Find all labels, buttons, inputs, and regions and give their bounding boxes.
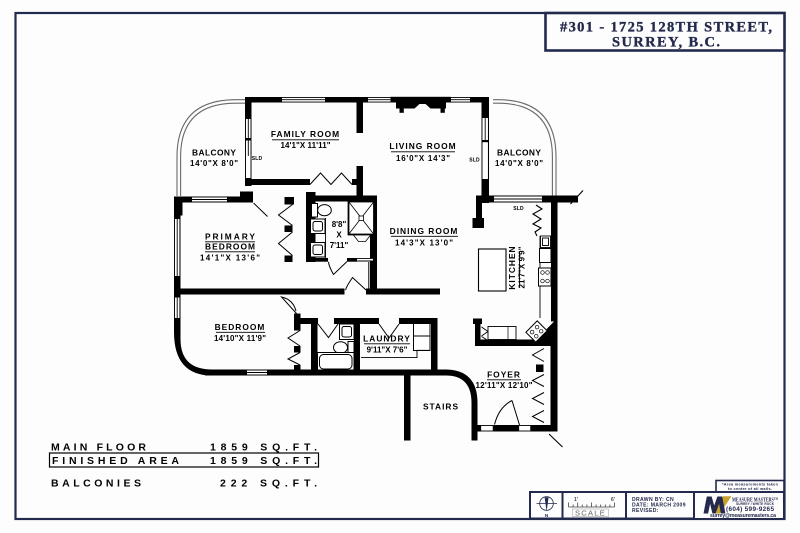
- svg-text:BEDROOM: BEDROOM: [205, 242, 255, 252]
- svg-text:14'1"X 11'11": 14'1"X 11'11": [281, 141, 331, 150]
- svg-text:FAMILY ROOM: FAMILY ROOM: [271, 129, 340, 139]
- svg-text:14'10"X 11'9": 14'10"X 11'9": [214, 334, 266, 343]
- svg-text:DINING ROOM: DINING ROOM: [390, 226, 459, 236]
- svg-text:MAIN FLOOR: MAIN FLOOR: [51, 442, 146, 454]
- svg-text:BALCONY: BALCONY: [192, 148, 236, 158]
- svg-text:6': 6': [611, 497, 615, 503]
- svg-text:KITCHEN: KITCHEN: [507, 245, 517, 289]
- svg-text:12'11"X 12'10": 12'11"X 12'10": [476, 381, 533, 390]
- svg-text:7'11": 7'11": [330, 241, 349, 250]
- svg-text:14'0"X 8'0": 14'0"X 8'0": [190, 159, 238, 168]
- svg-text:16'0"X 14'3": 16'0"X 14'3": [396, 154, 450, 163]
- svg-text:REVISED:: REVISED:: [632, 508, 659, 514]
- svg-text:BALCONIES: BALCONIES: [51, 478, 141, 490]
- svg-text:9'11"X 7'6": 9'11"X 7'6": [367, 346, 408, 355]
- svg-text:14'1"X 13'6": 14'1"X 13'6": [200, 254, 260, 263]
- svg-text:1': 1': [574, 497, 578, 503]
- svg-text:14'0"X 8'0": 14'0"X 8'0": [495, 159, 543, 168]
- svg-text:surrey@measuremasters.ca: surrey@measuremasters.ca: [710, 513, 776, 519]
- svg-text:FOYER: FOYER: [487, 370, 521, 380]
- svg-text:BALCONY: BALCONY: [497, 148, 541, 158]
- svg-text:STAIRS: STAIRS: [423, 402, 459, 412]
- svg-text:21'7"X 9'9": 21'7"X 9'9": [518, 246, 527, 288]
- svg-text:SURREY, B.C.: SURREY, B.C.: [612, 35, 720, 51]
- svg-text:SLD: SLD: [469, 158, 480, 164]
- svg-text:SLD: SLD: [252, 156, 263, 162]
- svg-text:BEDROOM: BEDROOM: [215, 322, 266, 332]
- svg-text:SCALE: SCALE: [575, 509, 606, 518]
- svg-text:8'8": 8'8": [332, 220, 347, 229]
- svg-text:X: X: [336, 231, 342, 240]
- svg-text:to center of all walls.: to center of all walls.: [728, 486, 772, 491]
- svg-text:FINISHED AREA: FINISHED AREA: [52, 455, 179, 467]
- svg-text:14'3"X 13'0": 14'3"X 13'0": [395, 239, 453, 248]
- svg-text:SLD: SLD: [513, 206, 524, 212]
- svg-text:LAUNDRY: LAUNDRY: [363, 334, 411, 344]
- svg-text:(604) 599-9265: (604) 599-9265: [726, 506, 774, 513]
- svg-text:#301 - 1725 128TH STREET,: #301 - 1725 128TH STREET,: [560, 20, 772, 36]
- svg-text:LIVING ROOM: LIVING ROOM: [389, 141, 456, 151]
